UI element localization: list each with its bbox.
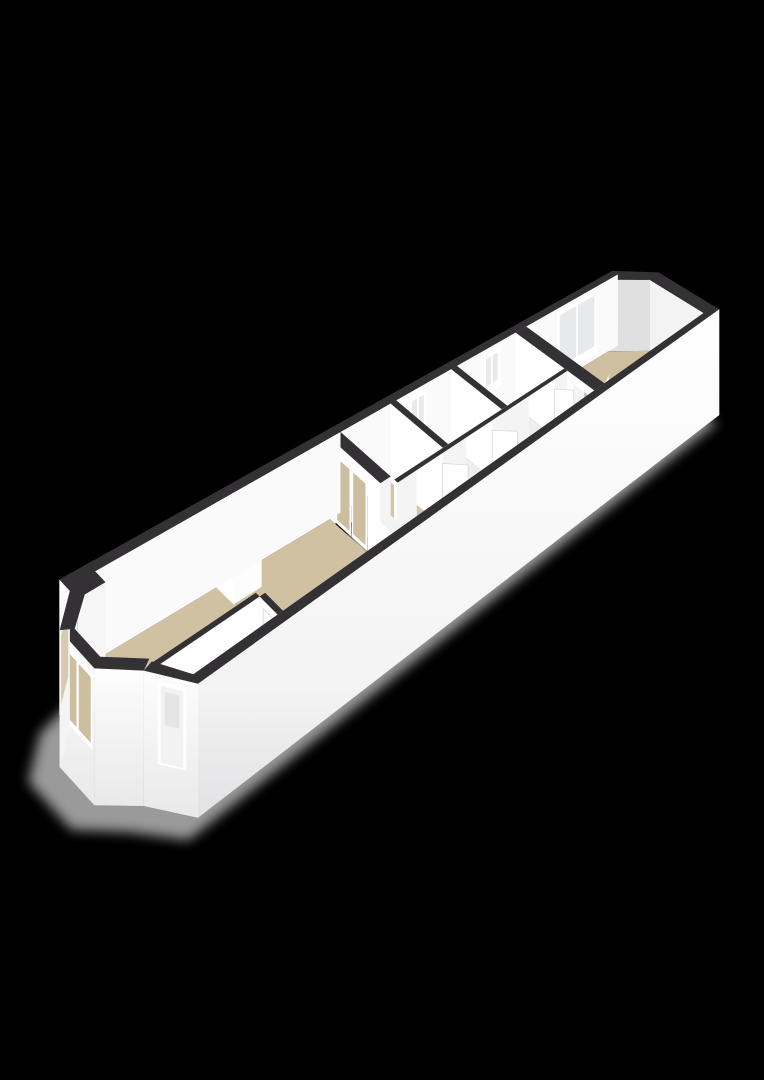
bedroom-window-mullion xyxy=(576,305,578,357)
front-door-panel xyxy=(165,692,180,729)
floorplan-3d xyxy=(0,0,764,1080)
french-door-right-glass xyxy=(353,473,365,546)
front-door-wall xyxy=(144,661,198,817)
wall-top xyxy=(94,657,149,671)
bay-cant-face xyxy=(94,668,143,806)
floorplan-canvas xyxy=(0,0,764,1080)
toilet-window-mullion xyxy=(491,355,493,383)
bay-window-mullion xyxy=(77,661,79,729)
bay-right-cant xyxy=(94,657,149,806)
